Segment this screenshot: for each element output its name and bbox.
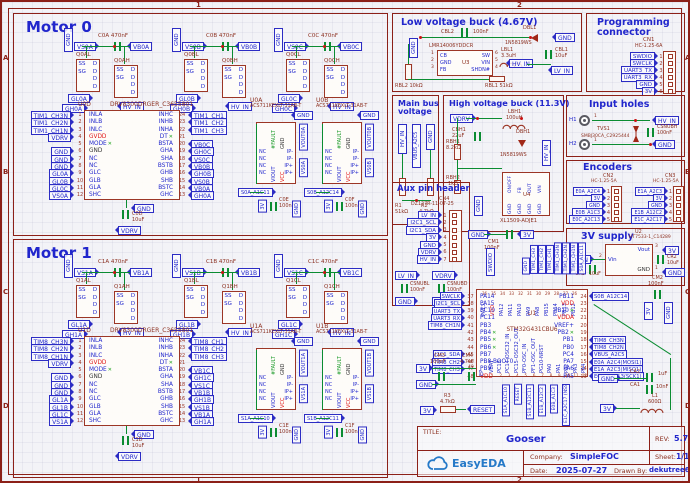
mosfet-package[interactable]: SSSG DDDD bbox=[286, 285, 310, 318]
pin-number: 5 bbox=[524, 373, 527, 378]
pin-name[interactable]: PB2 bbox=[528, 330, 577, 336]
pin-name[interactable]: MODE bbox=[86, 367, 131, 374]
net-flag-3v[interactable]: 3V bbox=[324, 426, 333, 439]
net-flag-lvin[interactable]: LV_IN bbox=[551, 66, 573, 75]
pin-name[interactable]: VIN bbox=[537, 175, 544, 193]
pin-name[interactable]: FB bbox=[440, 68, 446, 73]
pin-name[interactable]: PF1-OSC_OUT bbox=[531, 347, 538, 373]
wire bbox=[292, 46, 340, 47]
pin-name[interactable]: SHB bbox=[131, 178, 176, 185]
net-flag-swdio[interactable]: SWDIO bbox=[486, 248, 495, 276]
pin-name[interactable]: GLA bbox=[86, 185, 131, 192]
net-flag[interactable]: S0A_A1C11 bbox=[578, 242, 586, 274]
pin-name[interactable]: VIN bbox=[481, 61, 490, 66]
fet-drain-pins: DDDD bbox=[237, 67, 245, 97]
pin-name[interactable]: INHC bbox=[131, 112, 176, 119]
pin-ip[interactable]: IP- bbox=[353, 157, 359, 162]
pin-name[interactable]: GHA bbox=[131, 374, 176, 381]
net-flag-gnd[interactable]: GND bbox=[655, 140, 675, 149]
net-flag-vout[interactable]: VOUT0B bbox=[365, 124, 374, 151]
pin-viout[interactable]: VIOUT bbox=[271, 390, 278, 408]
pin-nc[interactable]: NC bbox=[259, 383, 266, 388]
pin-pad[interactable] bbox=[614, 203, 619, 208]
junction-dot bbox=[323, 45, 326, 48]
pin-name[interactable]: VBAT bbox=[489, 348, 496, 373]
net-flag-gnd[interactable]: GND bbox=[395, 297, 415, 306]
pin-pad[interactable] bbox=[614, 196, 619, 201]
pin-name[interactable]: GND bbox=[527, 200, 534, 214]
net-flag-gnd[interactable]: GND bbox=[274, 254, 283, 278]
net-flag-vs[interactable]: VS1A bbox=[299, 384, 308, 403]
pin-gnd[interactable]: GND bbox=[280, 351, 287, 375]
pin-name[interactable]: VREF+ bbox=[528, 323, 577, 329]
net-flag[interactable]: TIM1_CH2N bbox=[562, 242, 570, 274]
net-flag-gnd[interactable]: GND bbox=[64, 254, 73, 278]
pin-fault[interactable]: #FAULT bbox=[271, 125, 278, 149]
diode-symbol[interactable] bbox=[531, 34, 538, 42]
pin-name[interactable]: INHC bbox=[131, 338, 176, 345]
capacitor-symbol[interactable] bbox=[461, 28, 468, 37]
pin-ip[interactable]: IP- bbox=[287, 150, 293, 155]
capacitor-symbol[interactable] bbox=[336, 428, 343, 437]
pin-ip[interactable]: IP- bbox=[287, 383, 293, 388]
net-flag-gnd[interactable]: GND bbox=[358, 200, 367, 217]
net-flag[interactable]: LV_IN bbox=[395, 271, 417, 280]
net-flag[interactable]: E1B_A12C2 bbox=[538, 384, 546, 416]
mosfet-package[interactable]: SSSG DDDD bbox=[114, 65, 138, 98]
pin-name[interactable]: PF0-OSC_IN bbox=[522, 347, 529, 373]
pin-pad[interactable] bbox=[676, 203, 681, 208]
pin-nc[interactable]: NC bbox=[259, 397, 266, 402]
pin-name[interactable]: GLB bbox=[86, 178, 131, 185]
pin-pad[interactable] bbox=[452, 250, 457, 255]
pin-pad[interactable] bbox=[676, 196, 681, 201]
net-flag-gnd[interactable]: GND bbox=[64, 28, 73, 52]
pin-vout[interactable]: Vout bbox=[638, 248, 650, 254]
mosfet-package[interactable]: SSSG DDDD bbox=[184, 285, 208, 318]
net-flag-gnd[interactable]: GND bbox=[172, 28, 181, 52]
net-flag[interactable]: VDRV bbox=[432, 271, 455, 280]
net-flag[interactable]: TIM8_CH3 bbox=[191, 352, 227, 361]
pin-pad[interactable] bbox=[668, 82, 673, 87]
net-flag-hvin[interactable]: HV_IN bbox=[398, 124, 407, 154]
pin-name[interactable]: CB bbox=[440, 54, 447, 59]
net-flag[interactable]: TIM1_CH3 bbox=[530, 245, 538, 274]
pin-gnd[interactable]: GND bbox=[346, 351, 353, 375]
pin-name[interactable]: INLB bbox=[86, 345, 131, 352]
net-flag-3v[interactable]: 3V bbox=[600, 404, 614, 413]
pin-name[interactable]: INHB bbox=[131, 345, 176, 352]
pin-ep[interactable]: EP bbox=[479, 360, 486, 376]
mosfet-package[interactable]: SSSG DDDD bbox=[222, 291, 246, 324]
ic-body[interactable]: Vout Vin GND bbox=[605, 244, 653, 276]
net-flag[interactable]: TIM1_CH1 bbox=[546, 245, 554, 274]
pin-name[interactable]: PC13 bbox=[497, 348, 504, 373]
pin-ip[interactable]: IP- bbox=[353, 376, 359, 381]
capacitor-symbol[interactable] bbox=[646, 373, 653, 382]
pin-pad[interactable] bbox=[452, 257, 457, 262]
net-flag-gnd[interactable]: GND bbox=[665, 268, 685, 277]
pin-name[interactable]: INLC bbox=[86, 127, 131, 134]
pin-pad[interactable] bbox=[676, 210, 681, 215]
mosfet-package[interactable]: SSSG DDDD bbox=[222, 65, 246, 98]
pin-nc[interactable]: NC bbox=[259, 164, 266, 169]
pin-name[interactable]: NC bbox=[86, 156, 131, 163]
pin-name[interactable]: GND bbox=[440, 61, 451, 66]
pin-ip[interactable]: IP- bbox=[287, 157, 293, 162]
net-flag[interactable]: TIM1_CH2 bbox=[538, 245, 546, 274]
net-flag-vs[interactable]: VS0B bbox=[365, 158, 374, 177]
net-flag[interactable]: S1A_A1C10 bbox=[502, 384, 510, 416]
pin-nc[interactable]: NC bbox=[325, 397, 332, 402]
net-flag[interactable]: HV_IN bbox=[417, 255, 439, 264]
wire bbox=[190, 272, 238, 273]
tvs-symbol[interactable] bbox=[631, 124, 641, 144]
net-flag[interactable]: VDRV bbox=[48, 133, 71, 142]
pin-name[interactable]: PG10-NRST bbox=[539, 347, 546, 373]
pin-pad[interactable] bbox=[676, 217, 681, 222]
pin-name[interactable]: INLA bbox=[86, 338, 131, 345]
net-flag-vdrv[interactable]: VDRV bbox=[118, 452, 141, 461]
pin-pad[interactable] bbox=[668, 54, 673, 59]
pin-name[interactable]: INHA bbox=[131, 127, 176, 134]
net-flag-3v[interactable]: 3V bbox=[644, 302, 653, 320]
capacitor-symbol[interactable] bbox=[122, 210, 129, 219]
top-net-cell: TIM1_CH3N bbox=[554, 242, 562, 274]
pin-nc[interactable]: NC bbox=[325, 390, 332, 395]
ic-body[interactable]: U4 ON/OFF FB OUT VIN GND GND GND GND bbox=[502, 172, 550, 216]
mosfet-package[interactable]: SSSG DDDD bbox=[76, 59, 100, 92]
mosfet-package[interactable]: SSSG DDDD bbox=[286, 59, 310, 92]
net-flag-hvin[interactable]: HV_IN bbox=[542, 140, 551, 166]
net-flag-gnd[interactable]: GND bbox=[358, 426, 367, 443]
capacitor-symbol[interactable] bbox=[654, 290, 661, 299]
diode-symbol[interactable] bbox=[518, 140, 526, 147]
net-flag-3v[interactable]: 3V bbox=[665, 246, 679, 255]
pin-nc[interactable]: NC bbox=[259, 376, 266, 381]
capacitor-symbol[interactable] bbox=[270, 202, 277, 211]
driver-pin-row: TIM1_CH1N 3 INLC INHA 22 TIM1_CH3 bbox=[18, 126, 244, 133]
net-flag-gnd[interactable]: GND bbox=[426, 124, 435, 150]
net-flag-gnd[interactable]: GND bbox=[409, 38, 418, 58]
pin-nc[interactable]: NC bbox=[259, 171, 266, 176]
pin-name[interactable]: GVDD bbox=[86, 360, 131, 367]
pin-viout[interactable]: VIOUT bbox=[337, 390, 344, 408]
pin-name[interactable]: VDD bbox=[528, 301, 577, 307]
capacitor-symbol[interactable] bbox=[122, 436, 129, 445]
cap-value: 10uF bbox=[132, 218, 144, 223]
pin-pad[interactable] bbox=[452, 235, 457, 240]
net-flag[interactable]: GND bbox=[522, 258, 530, 275]
pin-name[interactable]: GHB bbox=[131, 170, 176, 177]
net-flag[interactable]: E1C_A2C17 bbox=[631, 215, 665, 224]
sensor-body[interactable]: #FAULT GND NC NC NC NC IP- IP- IP+ IP+ V… bbox=[322, 348, 362, 410]
pin-name[interactable]: PA15 bbox=[477, 301, 526, 307]
pin-name[interactable]: INHB bbox=[131, 119, 176, 126]
net-flag[interactable]: TIM1_CH1N bbox=[570, 242, 578, 274]
net-flag-hvin[interactable]: HV_IN bbox=[228, 328, 252, 337]
pin-name[interactable]: GND bbox=[517, 200, 524, 214]
pin-name[interactable]: INLB bbox=[86, 119, 131, 126]
pin-name[interactable]: DT bbox=[131, 134, 176, 141]
net-flag-reset[interactable]: RESET bbox=[470, 405, 495, 414]
sensor-body[interactable]: #FAULT GND NC NC NC NC IP- IP- IP+ IP+ V… bbox=[256, 122, 296, 184]
pin-name[interactable]: SHA bbox=[131, 156, 176, 163]
net-flag-vb[interactable]: VB1C bbox=[340, 268, 362, 277]
pin-name[interactable]: INLC bbox=[86, 353, 131, 360]
net-flag-gnd[interactable]: GND bbox=[360, 337, 379, 346]
net-flag-gnd[interactable]: GND bbox=[664, 302, 673, 324]
capacitor-symbol[interactable] bbox=[545, 50, 552, 59]
pin-ip[interactable]: IP- bbox=[353, 150, 359, 155]
net-flag-vdrv[interactable]: VDRV bbox=[118, 226, 141, 235]
net-flag-gnd[interactable]: GND bbox=[360, 111, 379, 120]
pin-name[interactable]: VDDA bbox=[528, 315, 577, 321]
net-flag-gnd[interactable]: GND bbox=[292, 426, 301, 443]
net-flag-3v[interactable]: 3V bbox=[258, 426, 267, 439]
net-flag-vs[interactable]: VS1B bbox=[365, 384, 374, 403]
pin-viout[interactable]: VIOUT bbox=[271, 164, 278, 182]
pin-name[interactable]: INHA bbox=[131, 353, 176, 360]
pin-gnd[interactable]: GND bbox=[637, 268, 650, 274]
resistor-symbol[interactable] bbox=[440, 406, 456, 413]
net-flag[interactable]: E0C_A2C13 bbox=[569, 215, 603, 224]
pin-name[interactable]: DT bbox=[131, 360, 176, 367]
net-flag-vb[interactable]: VB1A bbox=[130, 268, 152, 277]
capacitor-symbol[interactable] bbox=[657, 255, 664, 264]
mosfet-package[interactable]: SSSG DDDD bbox=[76, 285, 100, 318]
pin-name[interactable]: SHDN# bbox=[471, 68, 490, 73]
capacitor-symbol[interactable] bbox=[506, 230, 513, 239]
pin-name[interactable]: BSTB bbox=[131, 163, 176, 170]
net-flag[interactable]: GH0A bbox=[191, 191, 214, 200]
net-flag[interactable]: VS1A bbox=[49, 417, 71, 426]
pin-nc[interactable]: NC bbox=[325, 150, 332, 155]
pin-pad[interactable] bbox=[614, 210, 619, 215]
pin-name[interactable]: SHB bbox=[131, 404, 176, 411]
pin-name[interactable]: GND bbox=[507, 200, 514, 214]
net-flag[interactable]: E0B_A1C3 bbox=[550, 384, 558, 413]
capacitor-symbol[interactable] bbox=[336, 202, 343, 211]
pin-pad[interactable] bbox=[676, 189, 681, 194]
pin-name[interactable]: BSTB bbox=[131, 389, 176, 396]
capacitor-symbol[interactable] bbox=[647, 128, 654, 137]
pin-fault[interactable]: #FAULT bbox=[271, 351, 278, 375]
mosfet-package[interactable]: SSSG DDDD bbox=[184, 59, 208, 92]
mosfet-package[interactable]: SSSG DDDD bbox=[324, 291, 348, 324]
pin-nc[interactable]: NC bbox=[325, 157, 332, 162]
net-flag-3v[interactable]: 3V bbox=[258, 200, 267, 213]
pin-name[interactable]: PA0 bbox=[547, 348, 554, 373]
net-flag-vb[interactable]: VB0B bbox=[238, 42, 260, 51]
net-flag[interactable]: VS0A bbox=[49, 191, 71, 200]
pin-name[interactable]: SW bbox=[482, 54, 490, 59]
net-flag-gnd[interactable]: GND bbox=[294, 337, 313, 346]
pin-pad[interactable] bbox=[668, 89, 673, 94]
capacitor-symbol[interactable] bbox=[438, 372, 445, 381]
pin-name[interactable]: BSTC bbox=[131, 411, 176, 418]
pin-pad[interactable] bbox=[452, 243, 457, 248]
pin-nc[interactable]: NC bbox=[325, 376, 332, 381]
net-flag-gnd[interactable]: GND bbox=[474, 196, 483, 216]
net-flag-3v[interactable]: 3V bbox=[416, 364, 430, 373]
pin-name[interactable]: GND bbox=[86, 148, 131, 155]
pin-name[interactable]: NC bbox=[86, 382, 131, 389]
pin-ip[interactable]: IP- bbox=[287, 376, 293, 381]
net-flag-gnd[interactable]: GND bbox=[172, 254, 181, 278]
net-flag-vout[interactable]: VOUT0A bbox=[299, 124, 308, 151]
half-bridge-phase: GND VS0A C0A 470nF VB0A Q0AL SSSG DDDD Q… bbox=[62, 26, 166, 112]
net-flag[interactable]: RESET bbox=[514, 384, 522, 405]
pin-nc[interactable]: NC bbox=[259, 390, 266, 395]
pin-name[interactable]: INLA bbox=[86, 112, 131, 119]
pin-name[interactable]: OUT bbox=[527, 175, 534, 193]
pin-name[interactable]: PA2 bbox=[564, 348, 571, 373]
pin-name[interactable]: GVDD bbox=[86, 134, 131, 141]
pin-name[interactable]: ON/OFF bbox=[507, 175, 514, 193]
net-flag-3v[interactable]: 3V bbox=[324, 200, 333, 213]
net-flag[interactable]: VDRV bbox=[48, 359, 71, 368]
pin-name[interactable]: GHB bbox=[131, 396, 176, 403]
pin-vin[interactable]: Vin bbox=[608, 258, 617, 264]
net-flag-gnd[interactable]: GND bbox=[555, 33, 575, 42]
pin-nc[interactable]: NC bbox=[325, 164, 332, 169]
net-flag[interactable]: S0B_A12C14 bbox=[592, 292, 629, 301]
pin-name[interactable]: PA14 bbox=[477, 294, 526, 300]
pin-name[interactable]: PC10 bbox=[477, 308, 526, 314]
pin-name[interactable]: BSTA bbox=[131, 367, 176, 374]
sensor-body[interactable]: #FAULT GND NC NC NC NC IP- IP- IP+ IP+ V… bbox=[256, 348, 296, 410]
pin-pad[interactable] bbox=[452, 213, 457, 218]
pin-name[interactable]: PC15-OSC32_OUT bbox=[514, 347, 521, 373]
pin-pad[interactable] bbox=[668, 61, 673, 66]
net-flag[interactable]: TIM8_CH3 bbox=[432, 365, 462, 374]
pin-name[interactable]: FB bbox=[517, 175, 524, 193]
pin-number: 4 bbox=[495, 66, 498, 71]
net-flag-vout[interactable]: VOUT1B bbox=[365, 350, 374, 377]
pin-name[interactable]: BSTC bbox=[131, 185, 176, 192]
pin-pad[interactable] bbox=[452, 220, 457, 225]
sheet-label: Sheet: bbox=[655, 454, 676, 461]
pin-nc[interactable]: NC bbox=[325, 383, 332, 388]
net-flag[interactable]: GH1A bbox=[191, 417, 214, 426]
net-flag-vb[interactable]: VB0A bbox=[130, 42, 152, 51]
pin-ip[interactable]: IP- bbox=[353, 383, 359, 388]
net-flag[interactable]: S1B_A12C11 bbox=[526, 384, 534, 419]
capacitor-symbol[interactable] bbox=[270, 428, 277, 437]
pin-gnd[interactable]: GND bbox=[346, 125, 353, 149]
pin-name[interactable]: PA3 bbox=[573, 348, 580, 373]
pin-name[interactable]: GND bbox=[86, 374, 131, 381]
pin-name[interactable]: SHA bbox=[131, 382, 176, 389]
pin-pad[interactable] bbox=[668, 68, 673, 73]
pin-pad[interactable] bbox=[668, 75, 673, 80]
pin-number: 11 bbox=[74, 185, 86, 192]
pin-name[interactable]: GLB bbox=[86, 404, 131, 411]
capacitor-symbol[interactable] bbox=[468, 372, 475, 381]
net-flag-vb[interactable]: VB0C bbox=[340, 42, 362, 51]
pin-vcc[interactable]: VCC bbox=[280, 394, 287, 408]
pin-pad[interactable] bbox=[614, 217, 619, 222]
pin-name[interactable]: SHC bbox=[86, 418, 131, 425]
fet-drain-pins: DDDD bbox=[339, 293, 347, 323]
net-flag[interactable]: E1C_A2C17 (NSS1) bbox=[562, 384, 570, 426]
pin-name[interactable]: GLC bbox=[86, 170, 131, 177]
pin-name[interactable]: GHA bbox=[131, 148, 176, 155]
pin-pad[interactable] bbox=[452, 228, 457, 233]
pin-name[interactable]: MODE bbox=[86, 141, 131, 148]
net-flag-hvin[interactable]: HV_IN bbox=[655, 116, 679, 125]
pin-name[interactable]: GLC bbox=[86, 396, 131, 403]
pin-name[interactable]: PB10 bbox=[528, 308, 577, 314]
pin-name[interactable]: PA1 bbox=[556, 348, 563, 373]
ic-body[interactable]: U3 CB GND FB SW VIN SHDN# bbox=[437, 50, 493, 76]
pin-name[interactable]: PC14-OSC32_IN bbox=[505, 347, 512, 373]
pin-vcc[interactable]: VCC bbox=[346, 168, 353, 182]
pin-name[interactable]: GND bbox=[537, 200, 544, 214]
pin-nc[interactable]: NC bbox=[259, 157, 266, 162]
mcu-pin-row: PB11 24 S0B_A12C14 bbox=[528, 292, 654, 299]
wire bbox=[457, 118, 458, 144]
net-flag-3v[interactable]: 3V bbox=[520, 230, 534, 239]
pin-nc[interactable]: NC bbox=[259, 150, 266, 155]
net-flag[interactable]: TIM1_CH3 bbox=[191, 126, 227, 135]
pin-nc[interactable]: NC bbox=[325, 171, 332, 176]
pin-name[interactable]: NC bbox=[86, 163, 131, 170]
hole-h2[interactable] bbox=[579, 139, 590, 150]
cap-value: 10uF bbox=[132, 444, 144, 449]
net-flag-gnd[interactable]: GND bbox=[274, 28, 283, 52]
resistor-symbol[interactable] bbox=[405, 64, 412, 80]
resistor-symbol[interactable] bbox=[489, 76, 505, 82]
pin-name[interactable]: BSTA bbox=[131, 141, 176, 148]
net-flag-vb[interactable]: VB1B bbox=[238, 268, 260, 277]
pin-vcc[interactable]: VCC bbox=[346, 394, 353, 408]
cap-value: 10nF bbox=[656, 385, 668, 390]
net-flag[interactable]: TIM8_CH1N bbox=[428, 321, 462, 330]
pin-viout[interactable]: VIOUT bbox=[337, 164, 344, 182]
pin-name[interactable]: GHC bbox=[131, 192, 176, 199]
net-flag-vout[interactable]: VOUT1A bbox=[299, 350, 308, 377]
net-flag-hvin[interactable]: HV_IN bbox=[228, 102, 252, 111]
inductor-symbol[interactable] bbox=[640, 406, 664, 414]
pin-fault[interactable]: #FAULT bbox=[337, 351, 344, 375]
pin-name[interactable]: GLA bbox=[86, 411, 131, 418]
pin-vcc[interactable]: VCC bbox=[280, 168, 287, 182]
pin-pad[interactable] bbox=[614, 189, 619, 194]
pin-name[interactable]: SHC bbox=[86, 192, 131, 199]
pin-name[interactable]: PC11 bbox=[477, 315, 526, 321]
pin-name[interactable]: PB11 bbox=[528, 294, 577, 300]
pin-fault[interactable]: #FAULT bbox=[337, 125, 344, 149]
pin-name[interactable]: GHC bbox=[131, 418, 176, 425]
net-flag-3v[interactable]: 3V bbox=[420, 406, 434, 415]
net-flag[interactable]: TIM1_CH3N bbox=[554, 242, 562, 274]
net-flag-gnd[interactable]: GND bbox=[292, 200, 301, 217]
net-flag-gnd[interactable]: GND bbox=[294, 111, 313, 120]
capacitor-symbol[interactable] bbox=[474, 132, 481, 141]
pin-gnd[interactable]: GND bbox=[280, 125, 287, 149]
hole-h1[interactable] bbox=[579, 115, 590, 126]
pin-name[interactable]: PA4 bbox=[581, 348, 588, 373]
net-flag-vbus[interactable]: VBUS_A2C5 bbox=[412, 124, 421, 168]
pin-name[interactable]: NC bbox=[86, 389, 131, 396]
net-flag-vs[interactable]: VS0A bbox=[299, 158, 308, 177]
sensor-body[interactable]: #FAULT GND NC NC NC NC IP- IP- IP+ IP+ V… bbox=[322, 122, 362, 184]
mosfet-package[interactable]: SSSG DDDD bbox=[324, 65, 348, 98]
capacitor-symbol[interactable] bbox=[401, 284, 408, 293]
mosfet-package[interactable]: SSSG DDDD bbox=[114, 291, 138, 324]
